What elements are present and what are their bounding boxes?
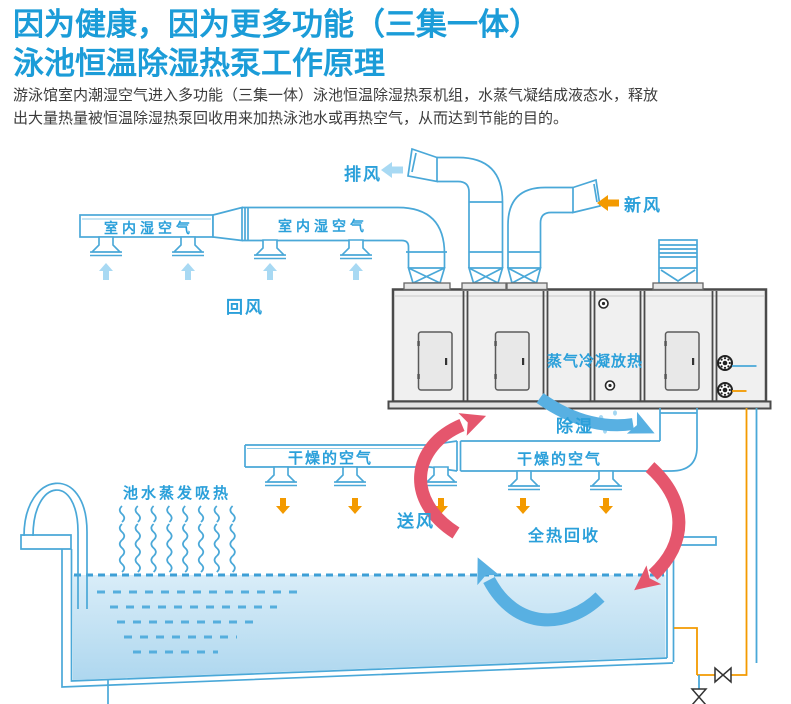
machine-base <box>389 402 771 409</box>
orange-pipe <box>674 408 747 675</box>
exhaust-duct <box>381 149 503 268</box>
label-pool-evaporation: 池水蒸发吸热 <box>123 482 231 503</box>
evaporation-waves <box>120 506 235 572</box>
label-indoor-humid-air-2: 室内湿空气 <box>278 216 368 236</box>
heat-pump-unit <box>389 268 771 409</box>
label-dehumidify: 除湿 <box>556 412 594 437</box>
return-air-up-arrows <box>99 263 363 280</box>
label-dry-air-2: 干燥的空气 <box>517 448 602 469</box>
valve-horizontal <box>715 668 731 682</box>
fresh-air-inlet-box <box>659 240 697 283</box>
piping <box>674 408 757 704</box>
fresh-air-duct <box>508 180 619 268</box>
exhaust-air-arrow <box>381 162 403 178</box>
label-exhaust-air: 排风 <box>344 160 382 185</box>
label-return-air: 回风 <box>226 293 264 318</box>
label-fresh-air: 新风 <box>624 191 662 216</box>
label-total-heat-recovery: 全热回收 <box>528 522 600 546</box>
fresh-air-arrow <box>597 195 619 211</box>
pool <box>21 483 716 704</box>
label-dry-air-1: 干燥的空气 <box>288 447 373 468</box>
label-supply-air: 送风 <box>397 507 435 532</box>
supply-air-down-arrows <box>276 498 613 514</box>
diagram-canvas <box>0 0 791 704</box>
valve-vertical <box>692 689 706 704</box>
infographic-page: 因为健康，因为更多功能（三集一体） 泳池恒温除湿热泵工作原理 游泳馆室内潮湿空气… <box>0 0 791 704</box>
label-indoor-humid-air-1: 室内湿空气 <box>104 218 194 238</box>
label-steam-condensation: 蒸气冷凝放热 <box>547 350 643 371</box>
